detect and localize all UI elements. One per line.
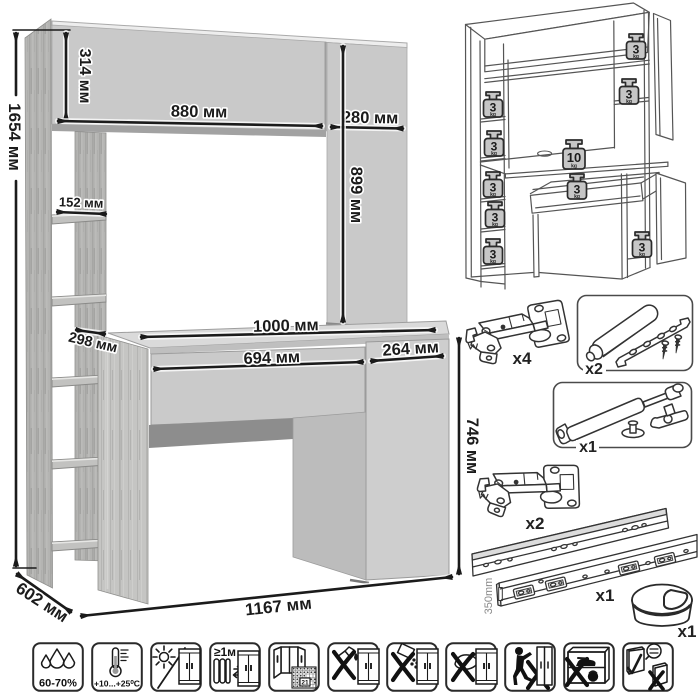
svg-text:1654 мм: 1654 мм bbox=[5, 103, 24, 171]
svg-text:350mm: 350mm bbox=[483, 578, 495, 615]
svg-text:899 мм: 899 мм bbox=[347, 167, 365, 224]
svg-text:280 мм: 280 мм bbox=[342, 109, 399, 128]
svg-text:880 мм: 880 мм bbox=[171, 103, 228, 122]
svg-text:≥1м: ≥1м bbox=[214, 645, 236, 659]
svg-text:x2: x2 bbox=[526, 514, 545, 533]
svg-text:x1: x1 bbox=[579, 439, 597, 456]
svg-text:264 мм: 264 мм bbox=[382, 338, 440, 359]
svg-text:21: 21 bbox=[301, 680, 309, 687]
svg-text:x1: x1 bbox=[596, 586, 615, 605]
svg-text:152 мм: 152 мм bbox=[59, 194, 104, 211]
svg-text:x4: x4 bbox=[513, 349, 532, 368]
svg-text:694 мм: 694 мм bbox=[243, 348, 300, 368]
svg-text:1000 мм: 1000 мм bbox=[253, 316, 319, 336]
svg-text:x2: x2 bbox=[585, 361, 603, 378]
svg-text:x1: x1 bbox=[678, 622, 697, 641]
svg-text:+10...+25⁰C: +10...+25⁰C bbox=[94, 679, 140, 689]
svg-text:60-70%: 60-70% bbox=[39, 678, 77, 690]
svg-text:314 мм: 314 мм bbox=[76, 49, 93, 104]
svg-text:746 мм: 746 мм bbox=[463, 418, 481, 475]
